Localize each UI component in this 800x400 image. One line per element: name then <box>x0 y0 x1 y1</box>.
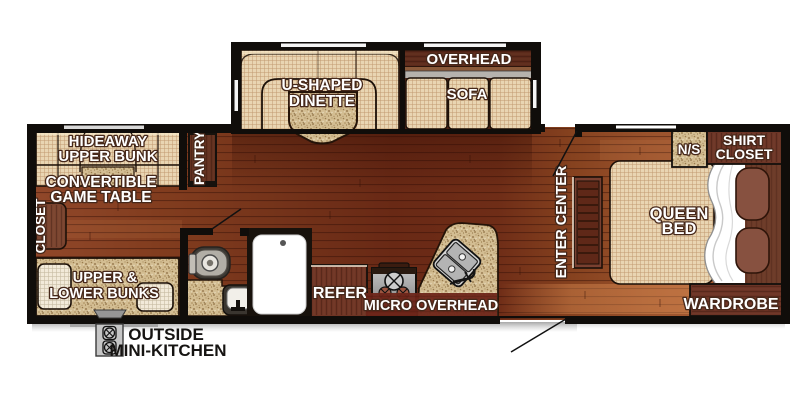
svg-text:OVERHEAD: OVERHEAD <box>426 51 511 68</box>
svg-text:UPPER BUNK: UPPER BUNK <box>58 148 157 165</box>
svg-text:BED: BED <box>662 220 697 238</box>
svg-text:U-SHAPED: U-SHAPED <box>282 77 363 94</box>
svg-text:MICRO OVERHEAD: MICRO OVERHEAD <box>364 298 499 314</box>
svg-text:MINI-KITCHEN: MINI-KITCHEN <box>109 341 226 360</box>
svg-text:LOWER BUNKS: LOWER BUNKS <box>49 286 159 302</box>
svg-text:DINETTE: DINETTE <box>289 93 355 110</box>
svg-text:GAME TABLE: GAME TABLE <box>50 189 151 206</box>
svg-text:UPPER &: UPPER & <box>73 270 138 286</box>
svg-text:SOFA: SOFA <box>447 86 488 103</box>
svg-text:WARDROBE: WARDROBE <box>683 296 778 313</box>
svg-text:PANTRY: PANTRY <box>192 131 207 185</box>
svg-text:ENTER CENTER: ENTER CENTER <box>554 165 570 278</box>
svg-text:N/S: N/S <box>678 142 701 157</box>
svg-text:REFER: REFER <box>313 285 368 302</box>
svg-text:CLOSET: CLOSET <box>716 146 773 162</box>
